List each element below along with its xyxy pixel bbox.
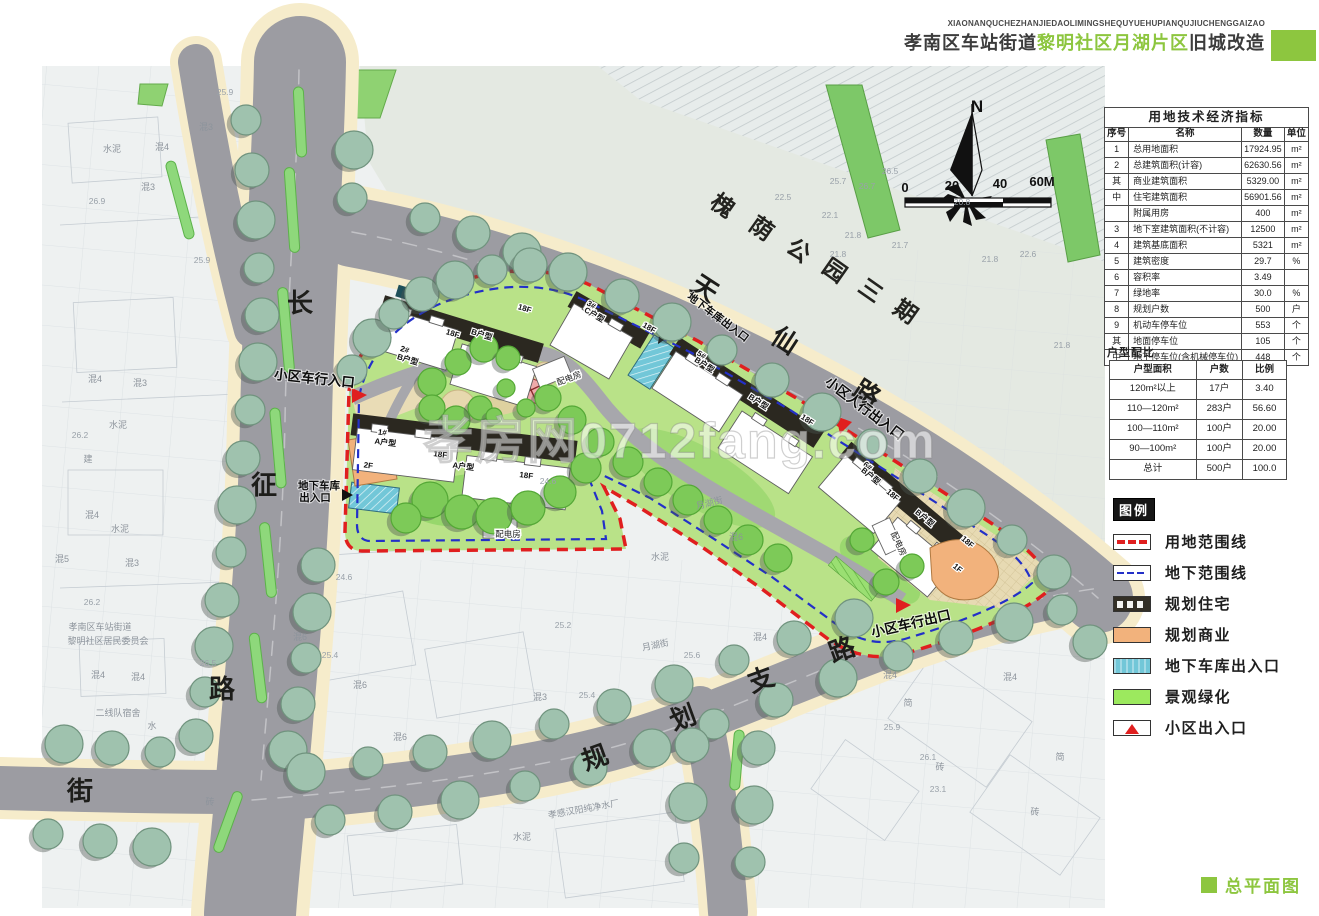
map-label: 21.8 — [1054, 340, 1071, 350]
table-cell: 商业建筑面积 — [1129, 173, 1242, 189]
table-cell: 9 — [1105, 317, 1129, 333]
map-label: 混6 — [729, 532, 743, 542]
map-label: 二线队宿舍 — [95, 707, 140, 718]
table-cell: m² — [1284, 221, 1308, 237]
indicators-table: 用地技术经济指标序号名称数量单位1总用地面积17924.95m²2总建筑面积(计… — [1104, 107, 1309, 366]
tree-icon — [883, 641, 913, 671]
scale-bar — [905, 198, 1051, 207]
map-label: 砖 — [205, 796, 214, 807]
table-row: 7绿地率30.0% — [1105, 285, 1309, 301]
map-label: 征 — [251, 470, 277, 500]
map-label: 水泥 — [651, 551, 669, 562]
map-label: 25.9 — [217, 87, 234, 97]
tree-icon — [764, 544, 792, 572]
title-suffix: 旧城改造 — [1189, 33, 1265, 53]
table-cell: 3 — [1105, 221, 1129, 237]
legend-items: 用地范围线地下范围线规划住宅规划商业地下车库出入口景观绿化小区出入口 — [1113, 531, 1281, 738]
map-label: 混4 — [155, 142, 169, 152]
map-label: 24.6 — [540, 476, 557, 486]
tree-icon — [45, 725, 83, 763]
map-label: 混6 — [353, 680, 367, 690]
table-cell: 户 — [1284, 301, 1308, 317]
tree-icon — [287, 753, 325, 791]
tree-icon — [473, 721, 511, 759]
map-label: 长 — [287, 288, 314, 318]
table-row: 附属用房400m² — [1105, 205, 1309, 221]
tree-icon — [216, 537, 246, 567]
map-label: 60M — [1029, 174, 1054, 189]
tree-icon — [441, 781, 479, 819]
tree-icon — [995, 603, 1033, 641]
map-label: 26.5 — [882, 166, 899, 176]
table-cell: 7 — [1105, 285, 1129, 301]
table-cell: 56901.56 — [1241, 189, 1284, 205]
title-highlight: 黎明社区月湖片区 — [1037, 33, 1189, 53]
tree-icon — [707, 335, 737, 365]
tree-icon — [644, 468, 672, 496]
table-title: 用地技术经济指标 — [1105, 108, 1309, 128]
map-label: 22.1 — [822, 210, 839, 220]
header: XIAONANQUCHEZHANJIEDAOLIMINGSHEQUYUEHUPI… — [904, 19, 1316, 61]
map-label: 黎明社区居民委员会 — [67, 635, 148, 646]
tree-icon — [413, 735, 447, 769]
table-cell: 地下室建筑面积(不计容) — [1129, 221, 1242, 237]
map-label: 26.7 — [859, 181, 876, 191]
tree-icon — [653, 303, 691, 341]
column-header: 比例 — [1242, 361, 1286, 380]
map-label: 水泥 — [103, 143, 121, 154]
watermark: 孝房网0712fang.com — [423, 413, 936, 469]
map-label: 混3 — [141, 182, 155, 192]
tree-icon — [145, 737, 175, 767]
map-label: 孝南区车站街道 — [68, 621, 131, 632]
table-cell: 绿地率 — [1129, 285, 1242, 301]
legend-label: 小区出入口 — [1165, 717, 1248, 738]
tree-icon — [245, 298, 279, 332]
table-cell: 30.0 — [1241, 285, 1284, 301]
table-cell: 5 — [1105, 253, 1129, 269]
column-header: 数量 — [1241, 128, 1284, 142]
map-label: N — [971, 97, 983, 116]
map-label: 混4 — [131, 672, 145, 682]
table-cell: 17户 — [1196, 380, 1242, 400]
tree-icon — [315, 805, 345, 835]
unit-mix-table: 户型面积户数比例120m²以上17户3.40110—120m²283户56.60… — [1109, 360, 1287, 480]
tree-icon — [231, 105, 261, 135]
map-label: 混4 — [753, 632, 767, 642]
legend-item-underground-boundary: 地下范围线 — [1113, 562, 1281, 583]
table-row: 90—100m²100户20.00 — [1110, 440, 1287, 460]
table-cell: 500 — [1241, 301, 1284, 317]
tree-icon — [33, 819, 63, 849]
map-label: 混5 — [55, 554, 69, 564]
footer-accent-square — [1201, 877, 1217, 893]
column-header: 名称 — [1129, 128, 1242, 142]
table-cell: 500户 — [1196, 460, 1242, 480]
table-row: 6容积率3.49 — [1105, 269, 1309, 285]
tree-icon — [873, 569, 899, 595]
table-cell: 附属用房 — [1129, 205, 1242, 221]
tree-icon — [605, 279, 639, 313]
table-cell: 400 — [1241, 205, 1284, 221]
table-cell: m² — [1284, 157, 1308, 173]
tree-icon — [741, 731, 775, 765]
table-cell: 个 — [1284, 317, 1308, 333]
map-label: 砖 — [1030, 806, 1039, 817]
legend-item-planned-commercial: 规划商业 — [1113, 624, 1281, 645]
table-cell: 容积率 — [1129, 269, 1242, 285]
map-label: 出入口 — [299, 491, 331, 504]
map-label: 25.4 — [579, 690, 596, 700]
table-cell: m² — [1284, 237, 1308, 253]
table-cell: 12500 — [1241, 221, 1284, 237]
footer: 总平面图 — [1201, 872, 1301, 897]
tree-icon — [1073, 625, 1107, 659]
legend: 图例 用地范围线地下范围线规划住宅规划商业地下车库出入口景观绿化小区出入口 — [1113, 498, 1281, 748]
map-label: 23.1 — [930, 784, 947, 794]
map-label: 26.1 — [920, 752, 937, 762]
planned-residential-swatch-icon — [1113, 596, 1151, 612]
tree-icon — [513, 248, 547, 282]
map-label: 混4 — [883, 670, 897, 680]
table-row: 3地下室建筑面积(不计容)12500m² — [1105, 221, 1309, 237]
title-pinyin: XIAONANQUCHEZHANJIEDAOLIMINGSHEQUYUEHUPI… — [904, 19, 1265, 28]
tree-icon — [237, 201, 275, 239]
table-cell: 住宅建筑面积 — [1129, 189, 1242, 205]
table-cell: 5329.00 — [1241, 173, 1284, 189]
map-label: 混4 — [1003, 672, 1017, 682]
legend-item-garage-entrance: 地下车库出入口 — [1113, 655, 1281, 676]
map-label: 简 — [1055, 751, 1064, 762]
table-row: 8规划户数500户 — [1105, 301, 1309, 317]
table-cell — [1284, 269, 1308, 285]
tree-icon — [947, 489, 985, 527]
tree-icon — [735, 847, 765, 877]
table-row: 2总建筑面积(计容)62630.56m² — [1105, 157, 1309, 173]
tree-icon — [133, 828, 171, 866]
map-label: 22.6 — [1020, 249, 1037, 259]
tree-icon — [633, 729, 671, 767]
table-row: 其商业建筑面积5329.00m² — [1105, 173, 1309, 189]
tree-icon — [353, 747, 383, 777]
map-label: 21.8 — [830, 249, 847, 259]
tree-icon — [655, 665, 693, 703]
table-cell: 20.00 — [1242, 440, 1286, 460]
table-cell: 4 — [1105, 237, 1129, 253]
tree-icon — [735, 786, 773, 824]
map-label: 混4 — [88, 374, 102, 384]
tree-icon — [777, 621, 811, 655]
table-cell: 105 — [1241, 333, 1284, 349]
table-cell: m² — [1284, 173, 1308, 189]
tree-icon — [597, 689, 631, 723]
planned-commercial-swatch-icon — [1113, 627, 1151, 643]
tree-icon — [456, 216, 490, 250]
table-cell: 个 — [1284, 333, 1308, 349]
map-label: 22.5 — [775, 192, 792, 202]
map-label: 25.9 — [194, 255, 211, 265]
map-label: 混6 — [293, 632, 307, 642]
map-label: 水 — [147, 720, 156, 731]
map-label: 21.7 — [892, 240, 909, 250]
table-cell: 553 — [1241, 317, 1284, 333]
table-cell: 1 — [1105, 141, 1129, 157]
table-cell: 3.49 — [1241, 269, 1284, 285]
tree-icon — [281, 687, 315, 721]
map-label: 26.2 — [84, 597, 101, 607]
table-cell: 283户 — [1196, 400, 1242, 420]
legend-label: 地下车库出入口 — [1165, 655, 1281, 676]
map-label: 25.7 — [830, 176, 847, 186]
legend-label: 规划商业 — [1165, 624, 1231, 645]
table-row: 100—110m²100户20.00 — [1110, 420, 1287, 440]
map-label: 26.2 — [72, 430, 89, 440]
tree-icon — [436, 261, 474, 299]
tree-icon — [1037, 555, 1071, 589]
tree-icon — [418, 368, 446, 396]
table-cell: 100—110m² — [1110, 420, 1197, 440]
legend-item-community-entrance: 小区出入口 — [1113, 717, 1281, 738]
table-cell: 建筑密度 — [1129, 253, 1242, 269]
tree-icon — [477, 255, 507, 285]
map-label: 25.2 — [555, 620, 572, 630]
tree-icon — [496, 346, 520, 370]
tree-icon — [997, 525, 1027, 555]
landscape-green-swatch-icon — [1113, 689, 1151, 705]
tree-icon — [95, 731, 129, 765]
tree-icon — [539, 709, 569, 739]
page-title: 孝南区车站街道黎明社区月湖片区旧城改造 — [904, 29, 1265, 55]
legend-item-site-boundary: 用地范围线 — [1113, 531, 1281, 552]
table-cell: 6 — [1105, 269, 1129, 285]
tree-icon — [291, 643, 321, 673]
map-label: 街 — [66, 776, 93, 806]
map-label: 砖 — [935, 761, 944, 772]
table-row: 120m²以上17户3.40 — [1110, 380, 1287, 400]
table-cell: m² — [1284, 205, 1308, 221]
legend-label: 景观绿化 — [1165, 686, 1231, 707]
map-label: 混3 — [125, 558, 139, 568]
table-cell: % — [1284, 285, 1308, 301]
map-label: 2F — [363, 460, 373, 470]
table-cell: 规划户数 — [1129, 301, 1242, 317]
table-row: 中住宅建筑面积56901.56m² — [1105, 189, 1309, 205]
header-accent-square — [1271, 30, 1316, 61]
tree-icon — [549, 253, 587, 291]
table-cell: 建筑基底面积 — [1129, 237, 1242, 253]
map-label: 24.6 — [336, 572, 353, 582]
column-header: 户数 — [1196, 361, 1242, 380]
table-cell: 总建筑面积(计容) — [1129, 157, 1242, 173]
map-label: 配电房 — [495, 529, 521, 539]
table-row: 110—120m²283户56.60 — [1110, 400, 1287, 420]
map-label: 26.9 — [89, 196, 106, 206]
map-label: 水泥 — [513, 831, 531, 842]
tree-icon — [755, 363, 789, 397]
map-label: 水泥 — [109, 419, 127, 430]
table-cell: 总计 — [1110, 460, 1197, 480]
community-entrance-swatch-icon — [1113, 720, 1151, 736]
unit-mix-title: 户型配比 — [1107, 344, 1155, 360]
table-cell: 100.0 — [1242, 460, 1286, 480]
tree-icon — [391, 503, 421, 533]
tree-icon — [669, 843, 699, 873]
tree-icon — [850, 528, 874, 552]
tree-icon — [235, 153, 269, 187]
table-cell: 62630.56 — [1241, 157, 1284, 173]
table-cell: 其 — [1105, 173, 1129, 189]
table-row: 总计500户100.0 — [1110, 460, 1287, 480]
map-label: 25.9 — [884, 722, 901, 732]
tree-icon — [900, 554, 924, 578]
table-cell: 机动车停车位 — [1129, 317, 1242, 333]
map-label: 40 — [993, 176, 1007, 191]
table-cell: 20.00 — [1242, 420, 1286, 440]
map-label: 26.5 — [200, 658, 217, 668]
map-label: 混3 — [199, 122, 213, 132]
table-cell: m² — [1284, 141, 1308, 157]
table-cell — [1105, 205, 1129, 221]
legend-label: 用地范围线 — [1165, 531, 1248, 552]
map-label: 25.6 — [684, 650, 701, 660]
tree-icon — [205, 583, 239, 617]
map-label: 21.8 — [845, 230, 862, 240]
table-row: 9机动车停车位553个 — [1105, 317, 1309, 333]
tree-icon — [510, 771, 540, 801]
tree-icon — [835, 599, 873, 637]
table-cell: 中 — [1105, 189, 1129, 205]
column-header: 序号 — [1105, 128, 1129, 142]
map-label: 建 — [83, 453, 92, 464]
underground-boundary-swatch-icon — [1113, 565, 1151, 581]
tree-icon — [293, 593, 331, 631]
map-label: 地下车库 — [298, 479, 340, 492]
tree-icon — [337, 183, 367, 213]
map-label: 20.8 — [954, 197, 971, 207]
legend-title: 图例 — [1113, 498, 1155, 521]
map-label: 25.4 — [322, 650, 339, 660]
drawing-type-label: 总平面图 — [1225, 872, 1301, 897]
tree-icon — [239, 343, 277, 381]
map-label: 简 — [903, 697, 912, 708]
tree-icon — [179, 719, 213, 753]
tree-icon — [535, 385, 561, 411]
map-label: 混4 — [85, 510, 99, 520]
table-cell: 110—120m² — [1110, 400, 1197, 420]
table-cell: 29.7 — [1241, 253, 1284, 269]
legend-item-landscape-green: 景观绿化 — [1113, 686, 1281, 707]
table-cell: m² — [1284, 189, 1308, 205]
tree-icon — [669, 783, 707, 821]
garage-entrance-swatch-icon — [1113, 658, 1151, 674]
tree-icon — [410, 203, 440, 233]
map-label: 1# — [377, 428, 387, 438]
column-header: 户型面积 — [1110, 361, 1197, 380]
map-label: 18F — [519, 470, 534, 481]
table-cell: 5321 — [1241, 237, 1284, 253]
table-cell: 2 — [1105, 157, 1129, 173]
table-cell: 90—100m² — [1110, 440, 1197, 460]
table-cell: 总用地面积 — [1129, 141, 1242, 157]
table-row: 5建筑密度29.7% — [1105, 253, 1309, 269]
legend-label: 地下范围线 — [1165, 562, 1248, 583]
tree-icon — [301, 548, 335, 582]
tree-icon — [939, 621, 973, 655]
map-label: 21.8 — [982, 254, 999, 264]
table-row: 4建筑基底面积5321m² — [1105, 237, 1309, 253]
column-header: 单位 — [1284, 128, 1308, 142]
map-label: 混6 — [393, 732, 407, 742]
table-cell: 3.40 — [1242, 380, 1286, 400]
map-label: 路 — [209, 674, 236, 704]
site-boundary-swatch-icon — [1113, 534, 1151, 550]
legend-label: 规划住宅 — [1165, 593, 1231, 614]
table-cell: % — [1284, 253, 1308, 269]
tree-icon — [83, 824, 117, 858]
map-label: 混3 — [133, 378, 147, 388]
table-row: 1总用地面积17924.95m² — [1105, 141, 1309, 157]
table-cell: 个 — [1284, 349, 1308, 365]
table-cell: 56.60 — [1242, 400, 1286, 420]
table-cell: 120m²以上 — [1110, 380, 1197, 400]
tree-icon — [1047, 595, 1077, 625]
table-cell: 8 — [1105, 301, 1129, 317]
map-label: 混4 — [91, 670, 105, 680]
title-prefix: 孝南区车站街道 — [904, 33, 1037, 53]
tree-icon — [378, 795, 412, 829]
map-label: 混3 — [533, 692, 547, 702]
map-label: 20 — [945, 178, 959, 193]
tree-icon — [335, 131, 373, 169]
legend-item-planned-residential: 规划住宅 — [1113, 593, 1281, 614]
map-label: 水泥 — [111, 523, 129, 534]
table-cell: 100户 — [1196, 420, 1242, 440]
tree-icon — [235, 395, 265, 425]
tree-icon — [497, 379, 515, 397]
tree-icon — [704, 506, 732, 534]
tree-icon — [244, 253, 274, 283]
map-label: 0 — [901, 180, 908, 195]
table-cell: 17924.95 — [1241, 141, 1284, 157]
table-cell: 100户 — [1196, 440, 1242, 460]
